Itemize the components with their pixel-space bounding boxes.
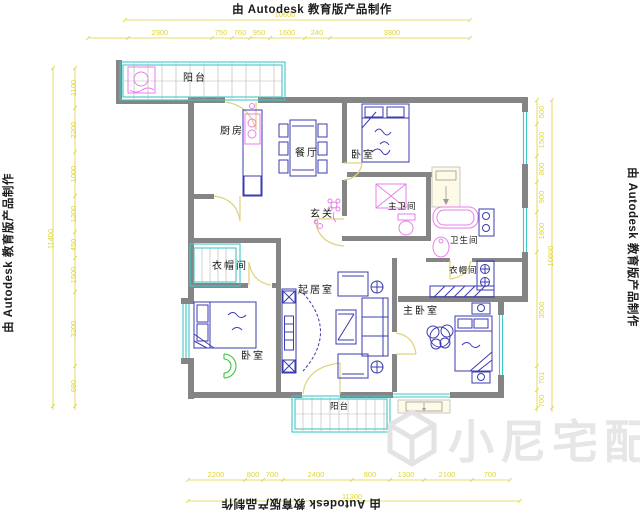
dim-right-seg-1: 1500: [537, 132, 546, 149]
dim-top-seg-2: 760: [234, 28, 247, 37]
room-label-master-bath: 主卫间: [388, 201, 417, 211]
sofa-icon: [338, 272, 388, 378]
room-label-balcony-top: 阳台: [183, 71, 207, 84]
room-label-master-bedroom: 主卧室: [403, 304, 439, 317]
dim-bottom-seg-6: 2100: [439, 470, 456, 479]
dim-left-seg-1: 2200: [69, 122, 78, 139]
dim-right-seg-5: 3500: [537, 302, 546, 319]
floorplan-canvas: 10600 2900 750 760 950 1600 240 3800 220…: [0, 0, 640, 512]
bathtub-icon: [433, 207, 478, 228]
room-label-entry: 玄关: [310, 207, 334, 220]
room-label-bedroom-bottom: 卧室: [241, 349, 265, 362]
brand-cube-icon: [390, 412, 434, 464]
dim-right-seg-0: 500: [537, 106, 546, 119]
plant-icon: [427, 325, 453, 349]
dim-top-seg-3: 950: [253, 28, 266, 37]
room-label-kitchen: 厨房: [220, 124, 244, 137]
dim-right-seg-4: 1800: [537, 223, 546, 240]
dim-top-seg-5: 240: [311, 28, 324, 37]
bed-master-icon: [455, 303, 492, 383]
dim-bottom-seg-1: 800: [247, 470, 260, 479]
dim-top-seg-0: 2900: [152, 28, 169, 37]
dim-top-seg-4: 1600: [279, 28, 296, 37]
dim-top-seg-1: 750: [215, 28, 228, 37]
ac-platform: [398, 400, 450, 413]
dim-left-seg-0: 1100: [69, 80, 78, 96]
washing-machine-icon: [128, 67, 155, 93]
bath-sink-icon: [433, 237, 449, 257]
room-label-bath: 卫生间: [450, 235, 479, 245]
dim-left-overall: 11400: [46, 229, 55, 249]
dim-left-seg-7: 680: [69, 380, 78, 393]
dim-left-seg-3: 1200: [69, 206, 78, 223]
dim-top-seg-6: 3800: [384, 28, 401, 37]
autodesk-stamp-bottom: 由 Autodesk 教育版产品制作: [221, 497, 381, 511]
dim-left-seg-4: 450: [69, 239, 78, 252]
dim-right-seg-6: 701: [537, 372, 546, 385]
room-label-dining: 餐厅: [295, 146, 319, 159]
dim-bottom-seg-3: 2400: [308, 470, 325, 479]
flue-shaft: [432, 167, 460, 207]
dim-left-seg-2: 1000: [69, 166, 78, 183]
brand-watermark: 小尼宅配: [390, 412, 640, 468]
bed-bottom-icon: [194, 302, 256, 348]
dim-right-seg-3: 900: [537, 191, 546, 204]
dim-bottom-seg-0: 2200: [208, 470, 225, 479]
kitchen-counter-icon: [243, 104, 262, 197]
dim-right-overall: 10600: [546, 246, 555, 267]
dim-bottom-seg-2: 700: [266, 470, 279, 479]
room-label-balcony-bottom: 阳台: [330, 401, 349, 411]
bath-cabinet-icon: [479, 209, 494, 236]
autodesk-stamp-top: 由 Autodesk 教育版产品制作: [232, 2, 392, 16]
dim-bottom-seg-5: 1300: [398, 470, 415, 479]
chair-icon: [224, 354, 236, 378]
brand-watermark-text: 小尼宅配: [448, 416, 640, 468]
autodesk-stamp-left: 由 Autodesk 教育版产品制作: [1, 173, 15, 333]
tv-unit-icon: [282, 289, 296, 373]
room-label-closet-left: 衣帽间: [212, 259, 248, 272]
room-label-living: 起居室: [298, 283, 334, 296]
dim-right-seg-2: 800: [537, 163, 546, 176]
walls: [116, 60, 528, 399]
dimension-lines-right: 500 1500 800 900 1800 3500 701 700 10600: [535, 98, 555, 412]
room-label-closet-right: 衣帽间: [449, 265, 478, 275]
dim-left-seg-5: 1500: [69, 267, 78, 284]
dim-right-seg-7: 700: [537, 395, 546, 408]
dimension-lines-left: 1100 2200 1000 1200 450 1500 3200 680 11…: [46, 66, 78, 410]
dim-bottom-seg-7: 700: [484, 470, 497, 479]
toilet-master-icon: [398, 214, 415, 235]
room-label-bedroom-top: 卧室: [351, 148, 375, 161]
autodesk-stamp-right: 由 Autodesk 教育版产品制作: [626, 167, 640, 327]
dim-bottom-seg-4: 800: [364, 470, 377, 479]
coffee-table-icon: [303, 293, 356, 371]
dim-left-seg-6: 3200: [69, 321, 78, 338]
